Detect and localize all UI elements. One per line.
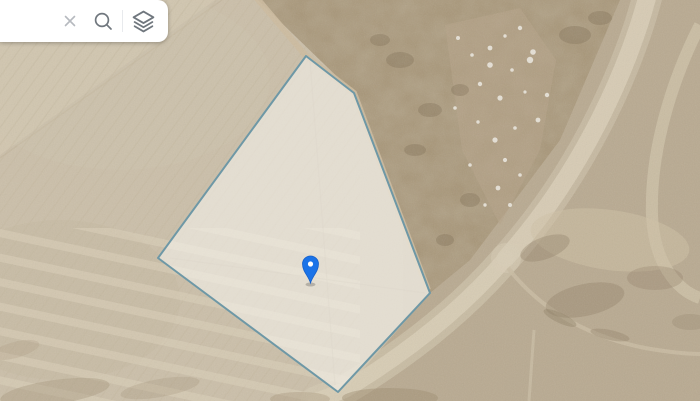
map-viewport[interactable] <box>0 0 700 401</box>
search-icon <box>93 11 114 32</box>
clear-search-button[interactable] <box>57 6 83 36</box>
layers-icon <box>132 10 155 33</box>
search-toolbar <box>0 0 168 42</box>
toolbar-divider <box>122 10 123 32</box>
layers-button[interactable] <box>128 6 158 36</box>
pin-dot <box>308 261 313 266</box>
search-input[interactable] <box>12 13 57 29</box>
satellite-map-canvas[interactable] <box>0 0 700 401</box>
search-button[interactable] <box>89 6 117 36</box>
close-icon <box>61 12 79 30</box>
